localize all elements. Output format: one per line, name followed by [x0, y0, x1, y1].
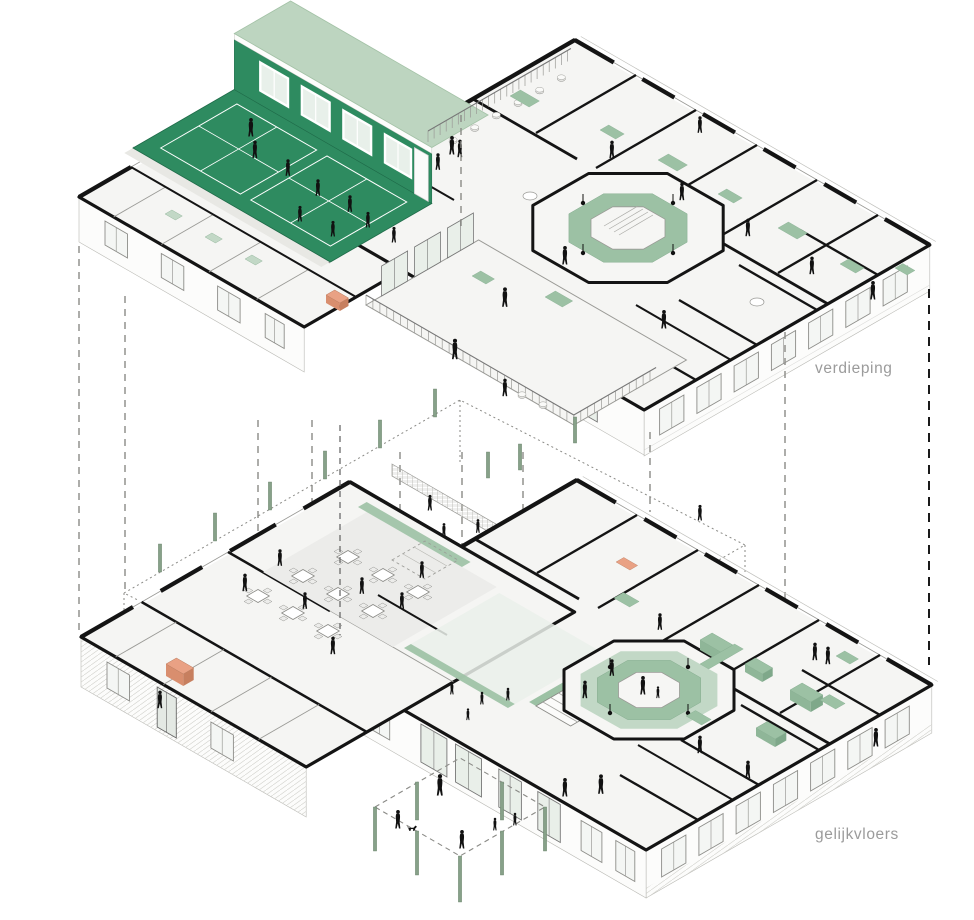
green-column [268, 482, 271, 510]
green-column [415, 831, 418, 875]
table-with-chairs [359, 603, 387, 619]
green-column [500, 782, 503, 820]
column-dot [581, 201, 585, 205]
hall-door [414, 148, 428, 202]
green-column [323, 451, 326, 479]
table-with-chairs [369, 567, 397, 583]
table-with-chairs [244, 588, 272, 604]
upper-atrium [533, 174, 723, 283]
axonometric-drawing-page: verdieping gelijkvloers [0, 0, 974, 920]
person-figure [698, 505, 702, 521]
green-column [433, 389, 436, 417]
column-dot [671, 251, 675, 255]
upper-floor-verdieping [79, 1, 936, 456]
green-column [213, 513, 216, 541]
green-column [543, 807, 546, 851]
floor-label-verdieping: verdieping [815, 360, 893, 377]
exploded-axonometric-drawing: verdieping gelijkvloers [0, 0, 974, 920]
column-dot [581, 251, 585, 255]
table-with-chairs [324, 586, 352, 602]
green-column [458, 856, 461, 902]
green-column [573, 417, 576, 443]
person-figure [459, 830, 464, 849]
person-figure [493, 818, 497, 831]
person-figure [395, 810, 400, 829]
column-dot [671, 201, 675, 205]
green-column [415, 782, 418, 820]
green-column [378, 420, 381, 448]
floor-label-gelijkvloers: gelijkvloers [815, 826, 899, 843]
green-column [500, 831, 503, 875]
table-with-chairs [314, 623, 342, 639]
table-with-chairs [334, 549, 362, 565]
ground-atrium [564, 641, 734, 739]
green-column [486, 452, 489, 478]
table-with-chairs [289, 568, 317, 584]
table-with-chairs [404, 584, 432, 600]
green-column [373, 807, 376, 851]
green-column [158, 544, 161, 572]
green-column [518, 444, 521, 470]
ground-floor-gelijkvloers [81, 477, 938, 899]
